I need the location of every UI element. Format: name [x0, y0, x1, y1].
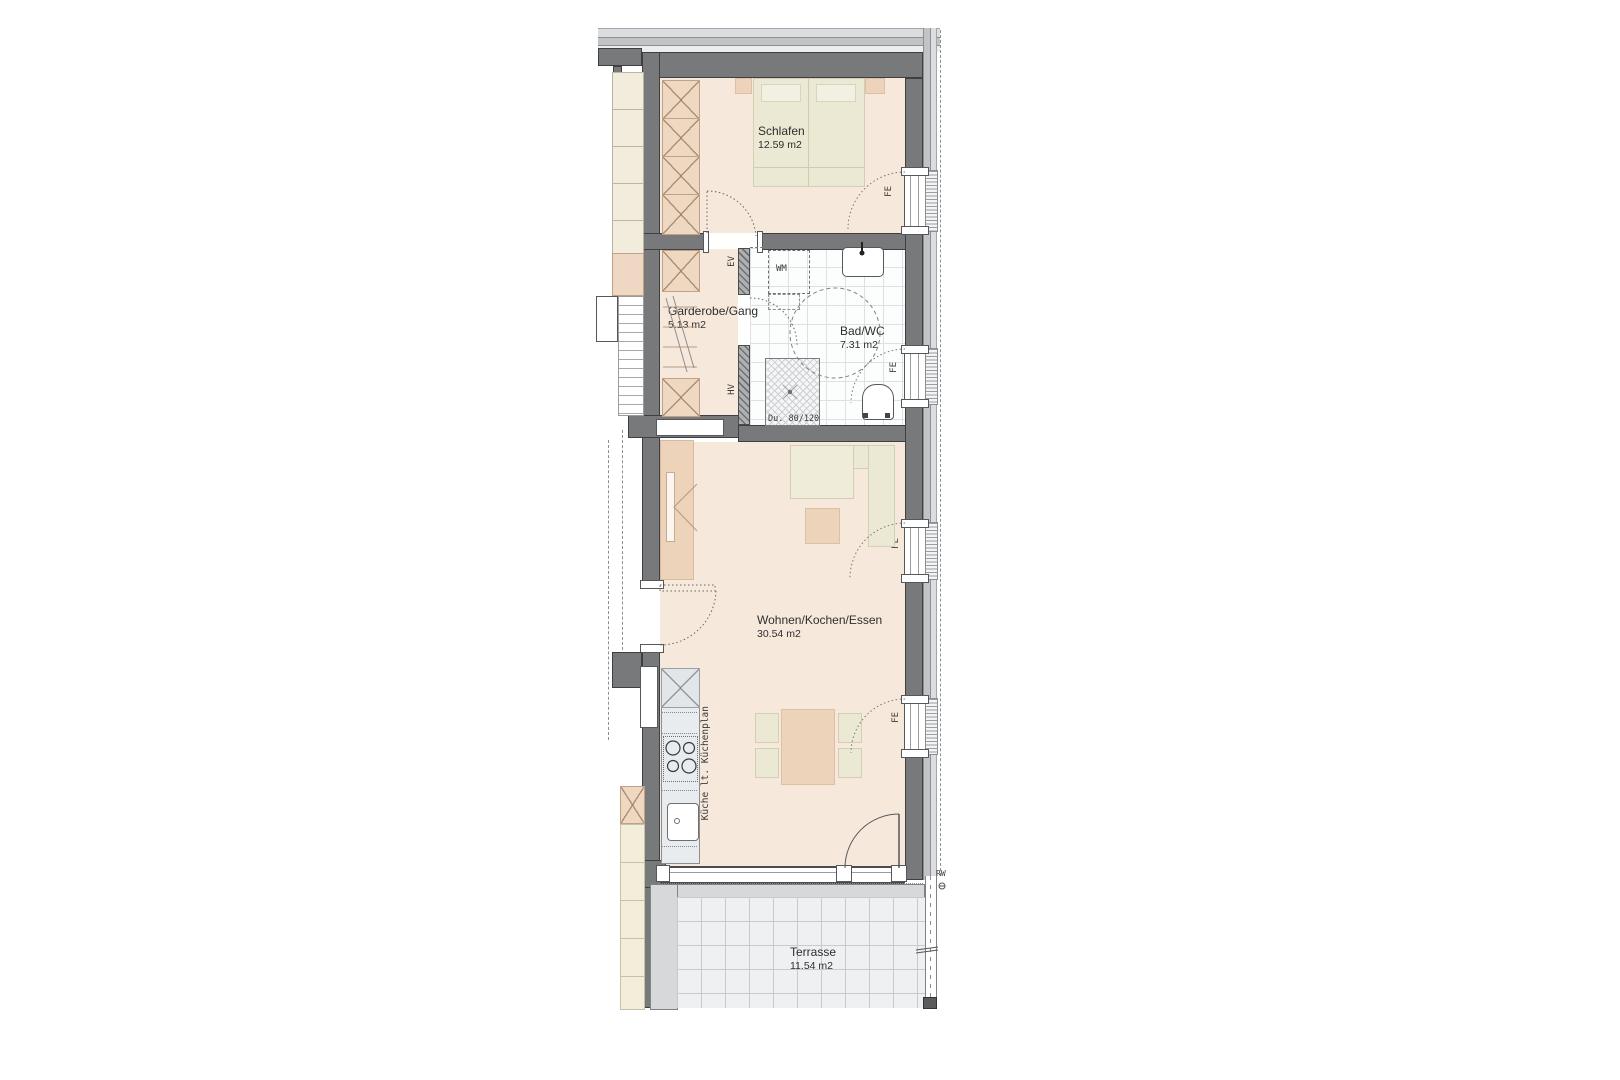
wall-schlafen-south-a — [642, 233, 705, 250]
wardrobe-cell — [662, 378, 700, 417]
window-label-fe-2: FE — [889, 362, 899, 373]
corridor-dashed-line — [608, 440, 609, 740]
floorplan-canvas: FE FE FE FE Schlafen 12.59 m2 Garderobe/… — [0, 0, 1620, 1080]
door-jamb — [640, 580, 664, 589]
window-outer-hatch — [925, 170, 938, 232]
mullion-post — [656, 865, 670, 882]
kitchen-separator — [662, 712, 697, 713]
room-area: 5.13 m2 — [668, 319, 758, 331]
window-label-fe-1: FE — [884, 186, 894, 197]
neighbor-wardrobe-cell — [620, 786, 645, 824]
wall-right-5 — [905, 753, 923, 880]
wall-bad-south — [738, 425, 923, 442]
facade-dashed-line — [940, 30, 941, 876]
wall-top-left-stub — [598, 48, 642, 66]
neighbor-wall-block — [612, 652, 642, 688]
wardrobe-cell — [662, 250, 700, 292]
dining-chair — [755, 713, 779, 743]
wall-niche — [656, 419, 724, 436]
neighbor-furniture-strip-2 — [620, 824, 645, 1010]
rainwater-outlet — [939, 883, 945, 889]
room-name: Schlafen — [758, 125, 805, 139]
wall-bad-west-upper — [738, 248, 750, 295]
neighbor-stairs — [618, 296, 644, 416]
window-sill — [901, 226, 929, 235]
tv — [666, 472, 675, 542]
room-name: Garderobe/Gang — [668, 305, 758, 319]
window-frame — [904, 348, 926, 405]
kitchen-separator — [662, 790, 697, 791]
window-outer-hatch — [925, 522, 938, 580]
neighbor-furniture-pink — [612, 253, 644, 296]
room-label-wohnen: Wohnen/Kochen/Essen 30.54 m2 — [757, 614, 882, 640]
nightstand — [865, 78, 885, 94]
neighbor-window — [596, 296, 618, 342]
window-frame — [904, 170, 926, 232]
room-name: Bad/WC — [840, 325, 885, 339]
dining-chair — [838, 748, 862, 778]
washing-machine-label: WM — [776, 264, 787, 274]
facade-trim-top — [598, 28, 940, 52]
label-hv: HV — [727, 384, 737, 395]
window-frame — [904, 698, 926, 755]
terrace-border-left — [650, 884, 678, 1010]
wall-top — [642, 52, 923, 78]
window-sill — [901, 399, 929, 408]
room-area: 12.59 m2 — [758, 139, 805, 151]
window-outer-hatch — [925, 698, 938, 755]
wardrobe-cell — [662, 118, 700, 158]
door-jamb — [757, 231, 763, 253]
room-name: Wohnen/Kochen/Essen — [757, 614, 882, 628]
coffee-table — [805, 508, 840, 544]
entry-door-opening — [642, 584, 660, 646]
room-area: 7.31 m2 — [840, 339, 885, 351]
dining-chair — [755, 748, 779, 778]
door-jamb — [703, 231, 709, 253]
wardrobe-cell — [662, 194, 700, 235]
room-label-bad: Bad/WC 7.31 m2 — [840, 325, 885, 351]
window-sill — [901, 574, 929, 583]
washbasin — [842, 247, 884, 277]
wall-right-3 — [905, 403, 923, 522]
neighbor-door — [640, 666, 658, 728]
room-label-terrasse: Terrasse 11.54 m2 — [790, 946, 836, 972]
room-label-schlafen: Schlafen 12.59 m2 — [758, 125, 805, 151]
label-ev: EV — [727, 256, 737, 267]
room-area: 30.54 m2 — [757, 628, 882, 640]
window-sill — [901, 695, 929, 704]
shower-size-label: Du. 80/120 — [768, 414, 819, 424]
room-name: Terrasse — [790, 946, 836, 960]
window-outer-hatch — [925, 348, 938, 405]
glass-band — [660, 866, 905, 884]
pillow — [816, 84, 856, 102]
wall-right-4 — [905, 578, 923, 698]
terrace-post — [924, 998, 936, 1008]
window-sill — [901, 519, 929, 528]
pillow — [761, 84, 801, 102]
terrace-railing — [925, 876, 937, 1008]
wall-right-1 — [905, 78, 923, 170]
kitchen-cabinet-cross — [661, 668, 700, 708]
wall-right-2 — [905, 230, 923, 348]
window-sill — [901, 749, 929, 758]
terrace-border-top — [650, 884, 925, 898]
room-label-garderobe: Garderobe/Gang 5.13 m2 — [668, 305, 758, 331]
kitchen-separator — [662, 846, 697, 847]
wall-bad-west-lower — [738, 345, 750, 425]
washing-machine-outline — [768, 294, 800, 310]
sofa-right-arm — [868, 445, 895, 547]
dining-chair — [838, 713, 862, 743]
rainwater-label: RW — [936, 869, 946, 878]
cooktop — [663, 736, 698, 782]
kitchen-note-label: Küche lt. Küchenplan — [700, 706, 711, 820]
corridor-dashed-line — [622, 430, 623, 660]
washing-machine — [768, 250, 810, 294]
nightstand — [735, 78, 752, 94]
kitchen-sink — [667, 803, 699, 841]
window-sill — [901, 167, 929, 176]
sofa-chaise — [790, 445, 854, 499]
door-jamb — [640, 644, 664, 653]
window-frame — [904, 522, 926, 580]
wardrobe-cell — [662, 156, 700, 196]
dining-table — [781, 709, 835, 785]
mullion-post — [836, 865, 852, 882]
window-sill — [901, 345, 929, 354]
window-label-fe-4: FE — [891, 712, 901, 723]
room-area: 11.54 m2 — [790, 960, 836, 972]
toilet — [862, 384, 894, 420]
kitchen-separator — [662, 733, 697, 734]
mullion-post — [891, 865, 907, 882]
wardrobe-cell — [662, 80, 700, 120]
